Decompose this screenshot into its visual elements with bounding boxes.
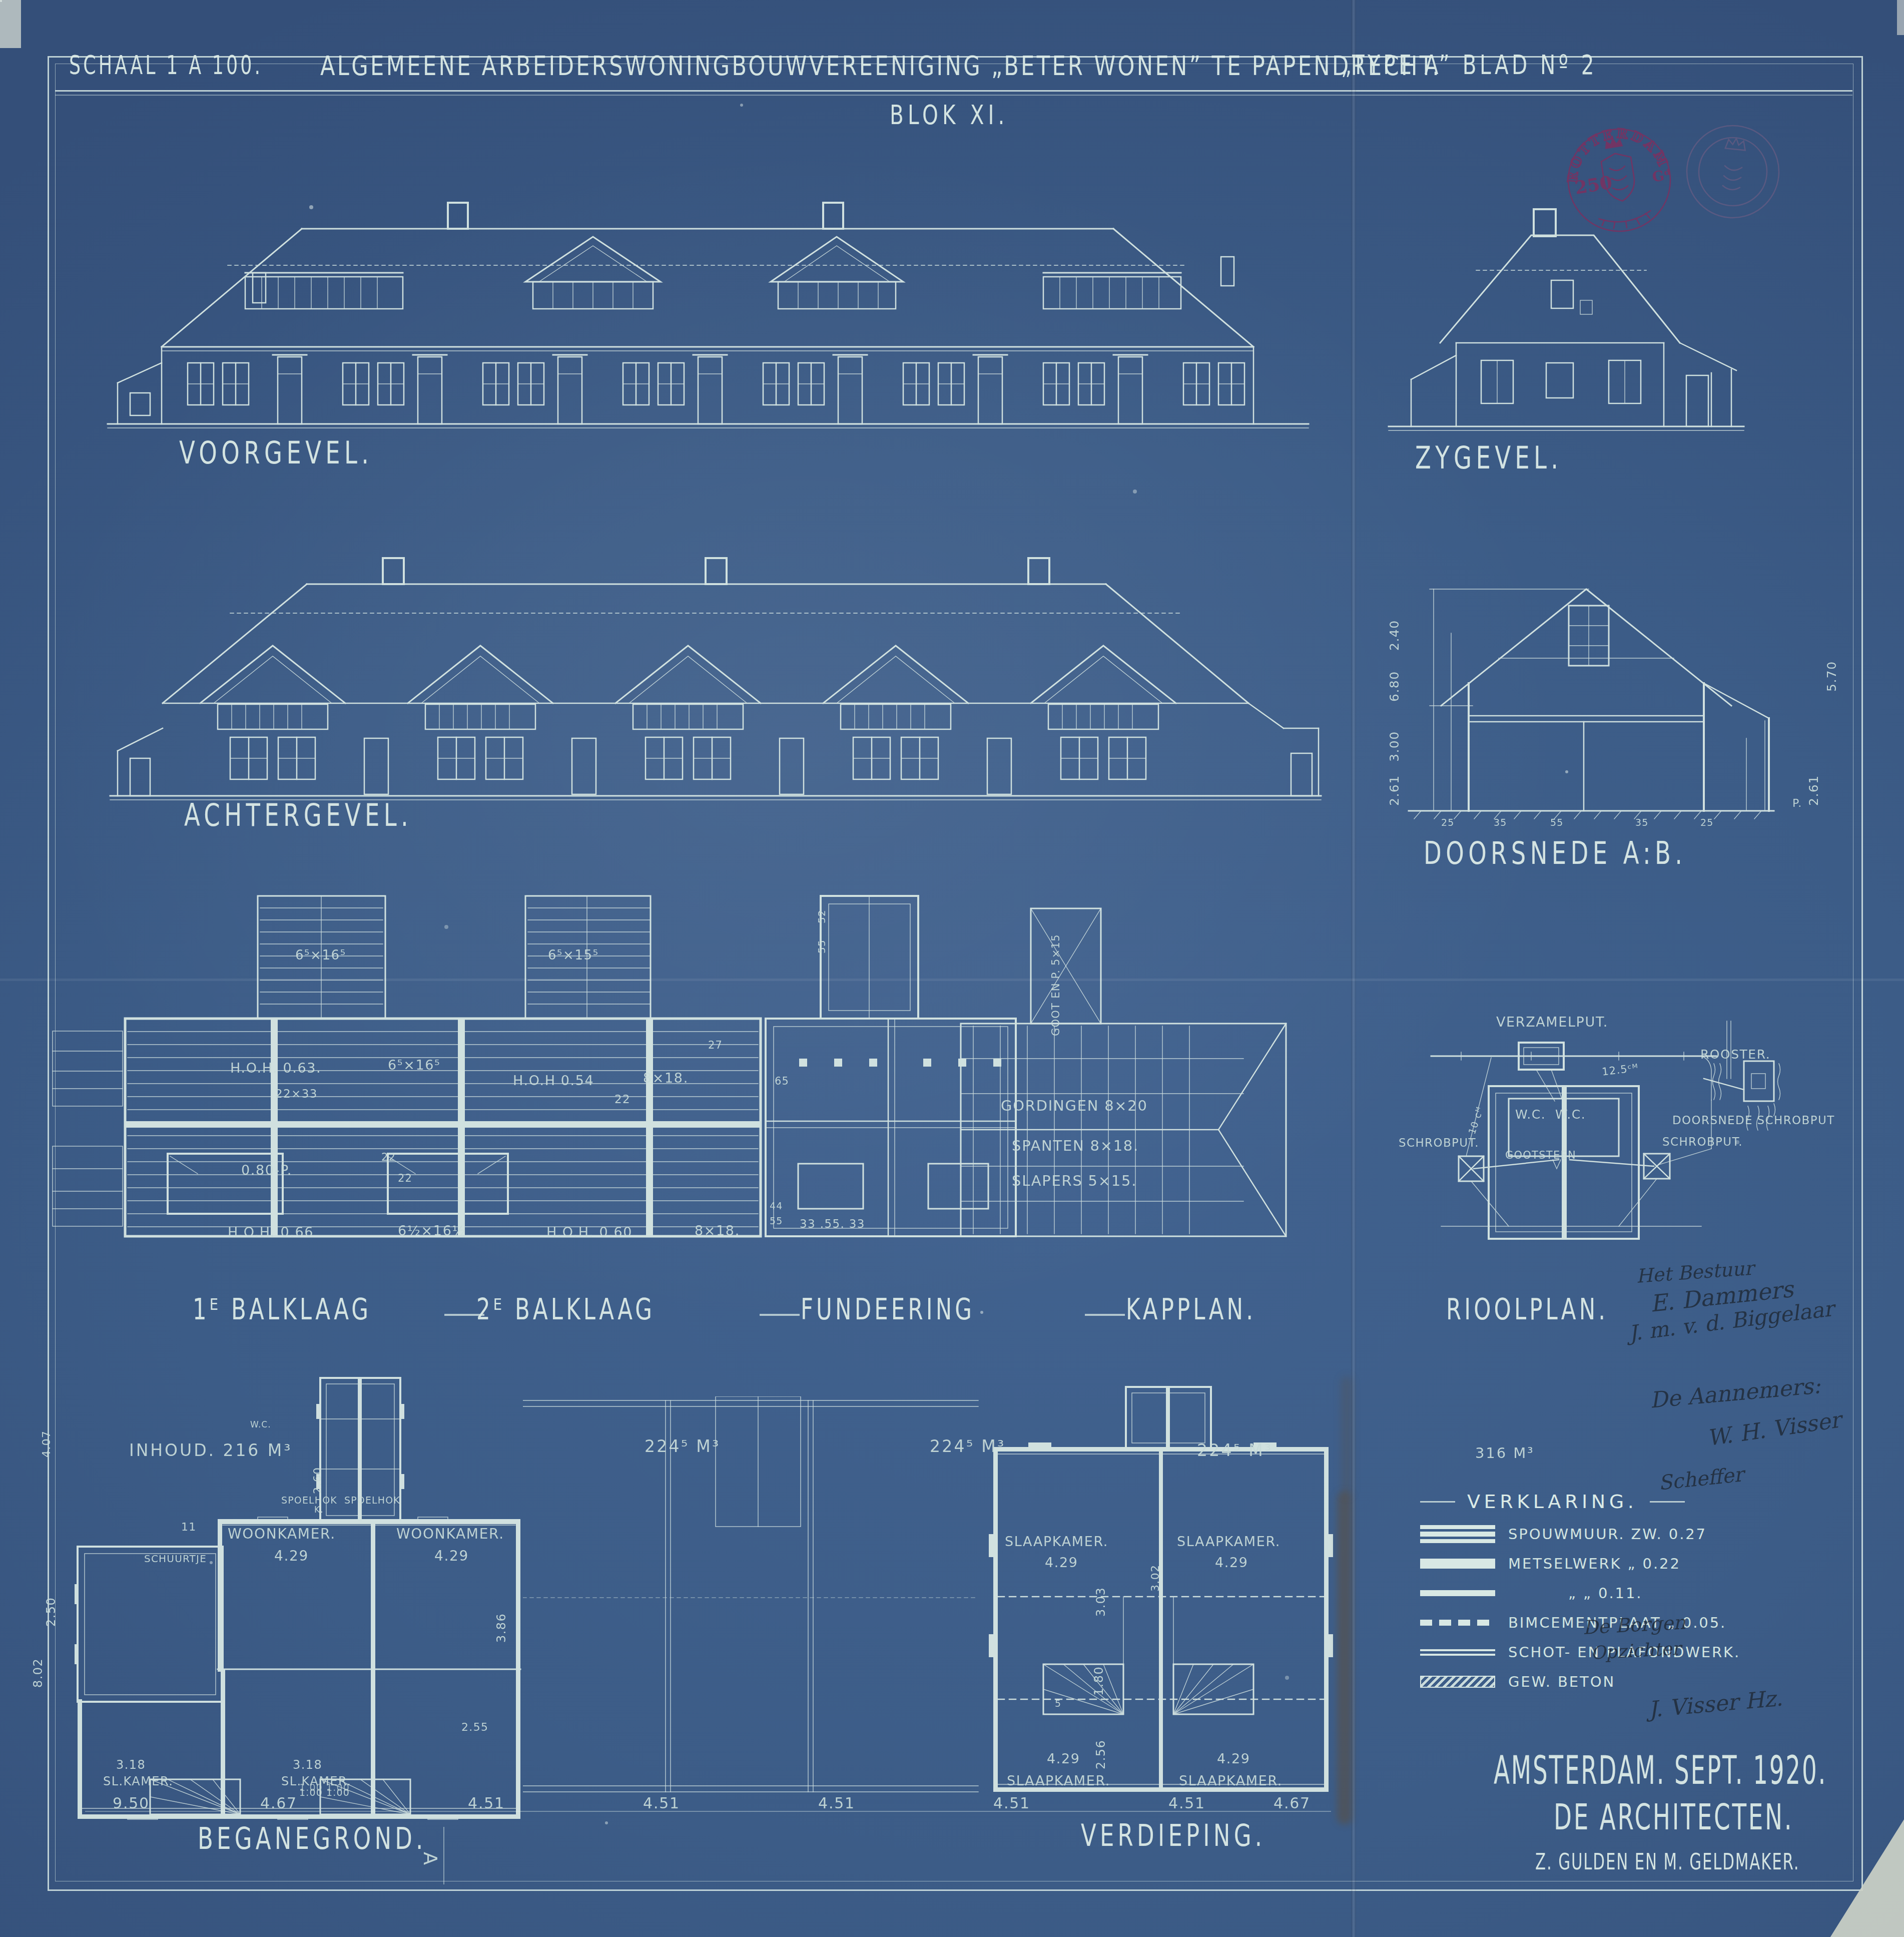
schrobput-left — [1459, 1156, 1484, 1181]
doorsnede-bdim-1: 35 — [1494, 817, 1507, 828]
right-annex — [1704, 683, 1769, 811]
inhoud-volume: INHOUD. 216 M³ — [129, 1440, 292, 1460]
scale-label: SCHAAL 1 A 100. — [69, 50, 263, 80]
kapplan-tower — [1031, 908, 1101, 1024]
legend-row-metselwerk11: „ „ 0.11. — [1420, 1584, 1720, 1603]
voorgevel-label: VOORGEVEL. — [179, 434, 373, 471]
bottom-dim-451e: 4.51 — [1168, 1794, 1205, 1812]
woonkamer-label-1: WOONKAMER. — [228, 1526, 336, 1542]
tower1-size: 6⁵×16⁵ — [295, 947, 346, 962]
legend-label: „ „ 0.11. — [1568, 1585, 1642, 1602]
slaapkamer-label-3: SLAAPKAMER. — [1007, 1773, 1110, 1788]
dim-407: 4.07 — [40, 1430, 53, 1458]
bimcementplaat-symbol — [1420, 1620, 1495, 1626]
spoelhok-label-1: SPOELHOK — [281, 1495, 337, 1506]
lintel-22a: 22 — [381, 1151, 396, 1163]
doorsnede-dim-261r: 2.61 — [1806, 775, 1821, 806]
label-dash-separator — [444, 1314, 484, 1316]
bottom-dim-451d: 4.51 — [993, 1794, 1030, 1812]
doorsnede-drawing — [1374, 558, 1804, 838]
slkamer-dim-2: 3.18 — [293, 1758, 322, 1772]
gootsteen-label: GOOTSTEEN — [1505, 1149, 1576, 1161]
stair-enclosure — [1569, 606, 1609, 666]
signature-4: Scheffer — [1657, 1463, 1744, 1495]
legend-row-beton: GEW. BETON — [1420, 1672, 1720, 1691]
sewer-main — [1431, 1052, 1716, 1060]
section-marker-a: A — [419, 1852, 441, 1866]
doorsnede-schrobput-label: DOORSNEDE SCHROBPUT — [1672, 1114, 1835, 1127]
dim-5: 5 — [1055, 1698, 1061, 1709]
dim-302: 3.02 — [1149, 1565, 1161, 1592]
aannemers-heading: De Aannemers: — [1649, 1372, 1821, 1413]
middle-annex — [716, 1396, 801, 1527]
dim-255: 2.55 — [461, 1721, 488, 1733]
kapplan-label: KAPPLAN. — [1126, 1292, 1256, 1326]
pediment-dormer-left — [525, 237, 661, 309]
legend: VERKLARING. SPOUWMUUR. ZW. 0.27 METSELWE… — [1420, 1491, 1720, 1702]
fund-65: 65 — [775, 1075, 789, 1087]
woonkamer-dim-2: 4.29 — [434, 1548, 469, 1564]
slaapkamer-dim-1: 4.29 — [1045, 1555, 1078, 1570]
schrobput-left-label: SCHROBPUT. — [1399, 1136, 1479, 1149]
metselwerk-22-symbol — [1420, 1559, 1495, 1569]
section-outline — [1441, 589, 1731, 811]
signature-3: W. H. Visser — [1705, 1407, 1842, 1451]
unit-volume-1: 224⁵ M³ — [645, 1436, 721, 1456]
slaapkamer-label-4: SLAAPKAMER. — [1179, 1773, 1283, 1788]
achtergevel-drawing — [103, 538, 1329, 818]
right-annex — [1248, 703, 1319, 796]
fundeering-tower — [821, 896, 918, 1019]
middle-units-outline — [523, 1396, 983, 1797]
slaapkamer-dim-2: 4.29 — [1215, 1555, 1248, 1570]
dim-lines — [1430, 589, 1589, 811]
kapplan-slapers: SLAPERS 5×15. — [1012, 1172, 1137, 1189]
blueprint-sheet: SCHAAL 1 A 100. ALGEMEENE ARBEIDERSWONIN… — [0, 0, 1904, 1937]
dim-250: 2.50 — [44, 1597, 58, 1627]
kapplan-spanten: SPANTEN 8×18. — [1012, 1137, 1139, 1154]
legend-dash-left — [1420, 1501, 1455, 1503]
gable-bays — [200, 646, 1176, 779]
kapplan-goot: GOOT EN P. 5×15 — [1050, 934, 1062, 1036]
slaapkamer-label-1: SLAAPKAMER. — [1005, 1534, 1108, 1549]
chimneys — [383, 558, 1049, 584]
metselwerk-11-symbol — [1420, 1590, 1495, 1596]
unit-volume-3: 224⁵ M³ — [1197, 1440, 1273, 1460]
peil-mark: P. — [1792, 797, 1802, 809]
doorsnede-dim-240: 2.40 — [1387, 620, 1402, 651]
zygevel-drawing — [1381, 200, 1751, 440]
outer-walls — [993, 1447, 1329, 1792]
woonkamer-label-2: WOONKAMER. — [396, 1526, 504, 1542]
lintel-22b: 22 — [398, 1172, 412, 1184]
section-line-a — [443, 1827, 444, 1884]
bottom-dim-467b: 4.67 — [1274, 1794, 1311, 1812]
bottom-dim-950: 9.50 — [113, 1794, 150, 1812]
spouwmuur-symbol — [1420, 1525, 1495, 1543]
legend-label: SPOUWMUUR. ZW. 0.27 — [1508, 1526, 1707, 1543]
verdieping-drawing — [953, 1384, 1344, 1824]
dim-303: 3.03 — [1094, 1587, 1108, 1617]
bottom-dim-451b: 4.51 — [643, 1794, 680, 1812]
woonkamer-dim-1: 4.29 — [274, 1548, 309, 1564]
bottom-dim-451a: 4.51 — [468, 1794, 505, 1812]
achtergevel-label: ACHTERGEVEL. — [184, 797, 412, 833]
dim-386: 3.86 — [494, 1613, 508, 1643]
wall — [1456, 343, 1664, 426]
legend-label: METSELWERK „ 0.22 — [1508, 1555, 1681, 1572]
dim-11: 11 — [181, 1521, 197, 1533]
block-label: BLOK XI. — [890, 99, 1009, 131]
spoelhok-label-2: SPOELHOK — [344, 1495, 400, 1506]
organization-title: ALGEMEENE ARBEIDERSWONINGBOUWVEREENIGING… — [320, 50, 1441, 82]
vertical-fold-crease — [1351, 0, 1356, 1937]
beton-symbol — [1420, 1676, 1495, 1688]
unit-volume-4: 316 M³ — [1475, 1444, 1535, 1462]
rooster-label: ROOSTER. — [1700, 1047, 1770, 1062]
legend-label: GEW. BETON — [1508, 1673, 1615, 1690]
doorsnede-bdim-4: 25 — [1700, 817, 1713, 828]
bottom-dim-100b: 1.00 — [326, 1782, 350, 1793]
doorsnede-bdim-0: 25 — [1441, 817, 1454, 828]
sheet-number: „TYPE A” BLAD Nº 2 — [1341, 49, 1597, 81]
verzamelput-label: VERZAMELPUT. — [1496, 1014, 1608, 1030]
doorsnede-dim-680: 6.80 — [1387, 671, 1402, 702]
legend-dash-right — [1650, 1501, 1685, 1503]
beganegrond-label: BEGANEGROND. — [198, 1821, 427, 1856]
chimney — [1534, 209, 1556, 236]
rioolplan-label: RIOOLPLAN. — [1446, 1292, 1608, 1326]
flat-dormer-left — [245, 273, 403, 309]
wc-label-2: W.C. — [1555, 1107, 1586, 1122]
hoh-066: H.O.H. 0.66 — [228, 1224, 314, 1240]
main-wall — [162, 347, 1253, 424]
slkamer-dim-1: 3.18 — [116, 1758, 146, 1772]
dim-802: 8.02 — [31, 1658, 45, 1688]
schrobput-right-label: SCHROBPUT. — [1662, 1135, 1743, 1148]
top-left-paper-edge — [0, 0, 21, 48]
architect-names: Z. GULDEN EN M. GELDMAKER. — [1535, 1849, 1799, 1874]
unit-volume-2: 224⁵ M³ — [930, 1436, 1006, 1456]
beam-6516: 6⁵×16⁵ — [388, 1057, 441, 1073]
stamp-unit-text: Gᵈ — [1651, 166, 1672, 186]
wc-label-1: W.C. — [1515, 1107, 1546, 1122]
title-rule — [55, 90, 1852, 92]
doorsnede-dim-261l: 2.61 — [1387, 775, 1402, 806]
kapplan-gordingen: GORDINGEN 8×20 — [1001, 1097, 1148, 1114]
bottom-dim-100a: 1.00 — [299, 1782, 323, 1793]
bottom-dim-467a: 4.67 — [260, 1794, 297, 1812]
left-annex — [118, 728, 163, 796]
kast-label: K. — [314, 1505, 324, 1515]
doorsnede-dim-300: 3.00 — [1387, 731, 1402, 762]
doorsnede-bdim-3: 35 — [1635, 817, 1648, 828]
hoh-054: H.O.H 0.54 — [513, 1073, 594, 1088]
balklaag-left-stub-upper — [50, 1029, 125, 1109]
legend-row-metselwerk22: METSELWERK „ 0.22 — [1420, 1554, 1720, 1573]
ground-hatch — [1409, 811, 1774, 819]
balklaag-left-stub-lower — [50, 1144, 125, 1229]
main-body-walls — [218, 1519, 520, 1819]
fundeering-label: FUNDEERING — [801, 1292, 975, 1326]
left-annex — [1411, 355, 1456, 426]
roof — [163, 584, 1248, 703]
wc-label: W.C. — [250, 1419, 271, 1429]
legend-row-spouwmuur: SPOUWMUUR. ZW. 0.27 — [1420, 1525, 1720, 1544]
porch — [1680, 343, 1736, 426]
right-edge-tear — [1897, 0, 1904, 35]
title-rule-thin — [55, 95, 1852, 96]
beam-818b: 8×18. — [695, 1223, 740, 1238]
legend-title: VERKLARING. — [1467, 1491, 1638, 1513]
hoh-060: H.O.H. 0.60 — [546, 1224, 632, 1240]
fund-44: 44 — [770, 1200, 783, 1211]
hoh-063: H.O.H. 0.63. — [230, 1060, 321, 1076]
rotterdam-tax-stamp: ROTTERDAM 250 Gᵈ — [1552, 113, 1687, 248]
doorsnede-dim-570: 5.70 — [1824, 661, 1839, 692]
pediment-dormer-right — [771, 237, 903, 309]
schuurtje-annex — [75, 1547, 223, 1702]
voorgevel-drawing — [103, 198, 1314, 438]
stairs-left — [1043, 1597, 1123, 1714]
slaapkamer-dim-3: 4.29 — [1047, 1751, 1080, 1766]
label-dash-separator — [760, 1314, 800, 1316]
schuurtje-label: SCHUURTJE — [144, 1553, 207, 1565]
city-date: AMSTERDAM. SEPT. 1920. — [1494, 1748, 1827, 1793]
fund-55: 55 — [816, 939, 828, 953]
architects-heading: DE ARCHITECTEN. — [1554, 1796, 1793, 1838]
kapplan — [961, 1024, 1286, 1236]
bottom-dim-451c: 4.51 — [818, 1794, 855, 1812]
dim-180: 1.80 — [1092, 1666, 1106, 1696]
stairs-right — [1173, 1597, 1253, 1714]
fund-55b: 55 — [770, 1215, 783, 1226]
doorsnede-label: DOORSNEDE A:B. — [1424, 835, 1686, 871]
attic-annex — [1126, 1387, 1211, 1449]
fundeering-grid — [766, 1019, 1016, 1236]
slaapkamer-dim-4: 4.29 — [1217, 1751, 1250, 1766]
dim-256: 2.56 — [1094, 1740, 1108, 1769]
chimneys — [253, 203, 1234, 303]
num-22: 22 — [614, 1093, 630, 1106]
verdieping-label: VERDIEPING. — [1081, 1818, 1265, 1853]
fund-bottom-dims: 33 .55. 33 — [800, 1217, 865, 1230]
fund-27: 27 — [708, 1039, 723, 1051]
roof — [162, 229, 1253, 347]
roof — [1440, 235, 1680, 343]
paper-speckles — [0, 0, 2, 2]
stamp-laurel — [1599, 211, 1653, 232]
beam-818a: 8×18. — [643, 1070, 689, 1086]
slaapkamer-label-2: SLAAPKAMER. — [1177, 1534, 1281, 1549]
windows — [1481, 280, 1641, 403]
balklaag2-label: 2ᴱ BALKLAAG — [476, 1292, 655, 1326]
slkamer-label-1: SL.KAMER. — [103, 1774, 173, 1788]
dim-260: 2.60 — [311, 1467, 324, 1494]
label-dash-separator — [1085, 1314, 1125, 1316]
left-annex — [118, 363, 162, 424]
tower2-size: 6⁵×15⁵ — [548, 947, 599, 962]
flat-dormer-right — [1043, 273, 1181, 309]
zygevel-label: ZYGEVEL. — [1415, 439, 1563, 476]
fund-52: 52 — [816, 909, 828, 923]
rear-doors — [364, 738, 1011, 794]
schotwerk-symbol — [1420, 1649, 1495, 1656]
balklaag1-label: 1ᴱ BALKLAAG — [193, 1292, 371, 1326]
balklaag-grid — [125, 1019, 761, 1236]
secondary-stamp — [1675, 114, 1791, 230]
opening-080p: 0.80-P. — [241, 1162, 292, 1178]
doorsnede-bdim-2: 55 — [1550, 817, 1563, 828]
facade-windows — [188, 363, 1244, 405]
beam-6516b: 6½×16½ — [398, 1223, 466, 1238]
size-2233: 22×33 — [275, 1087, 318, 1100]
torn-corner — [1824, 1819, 1904, 1937]
